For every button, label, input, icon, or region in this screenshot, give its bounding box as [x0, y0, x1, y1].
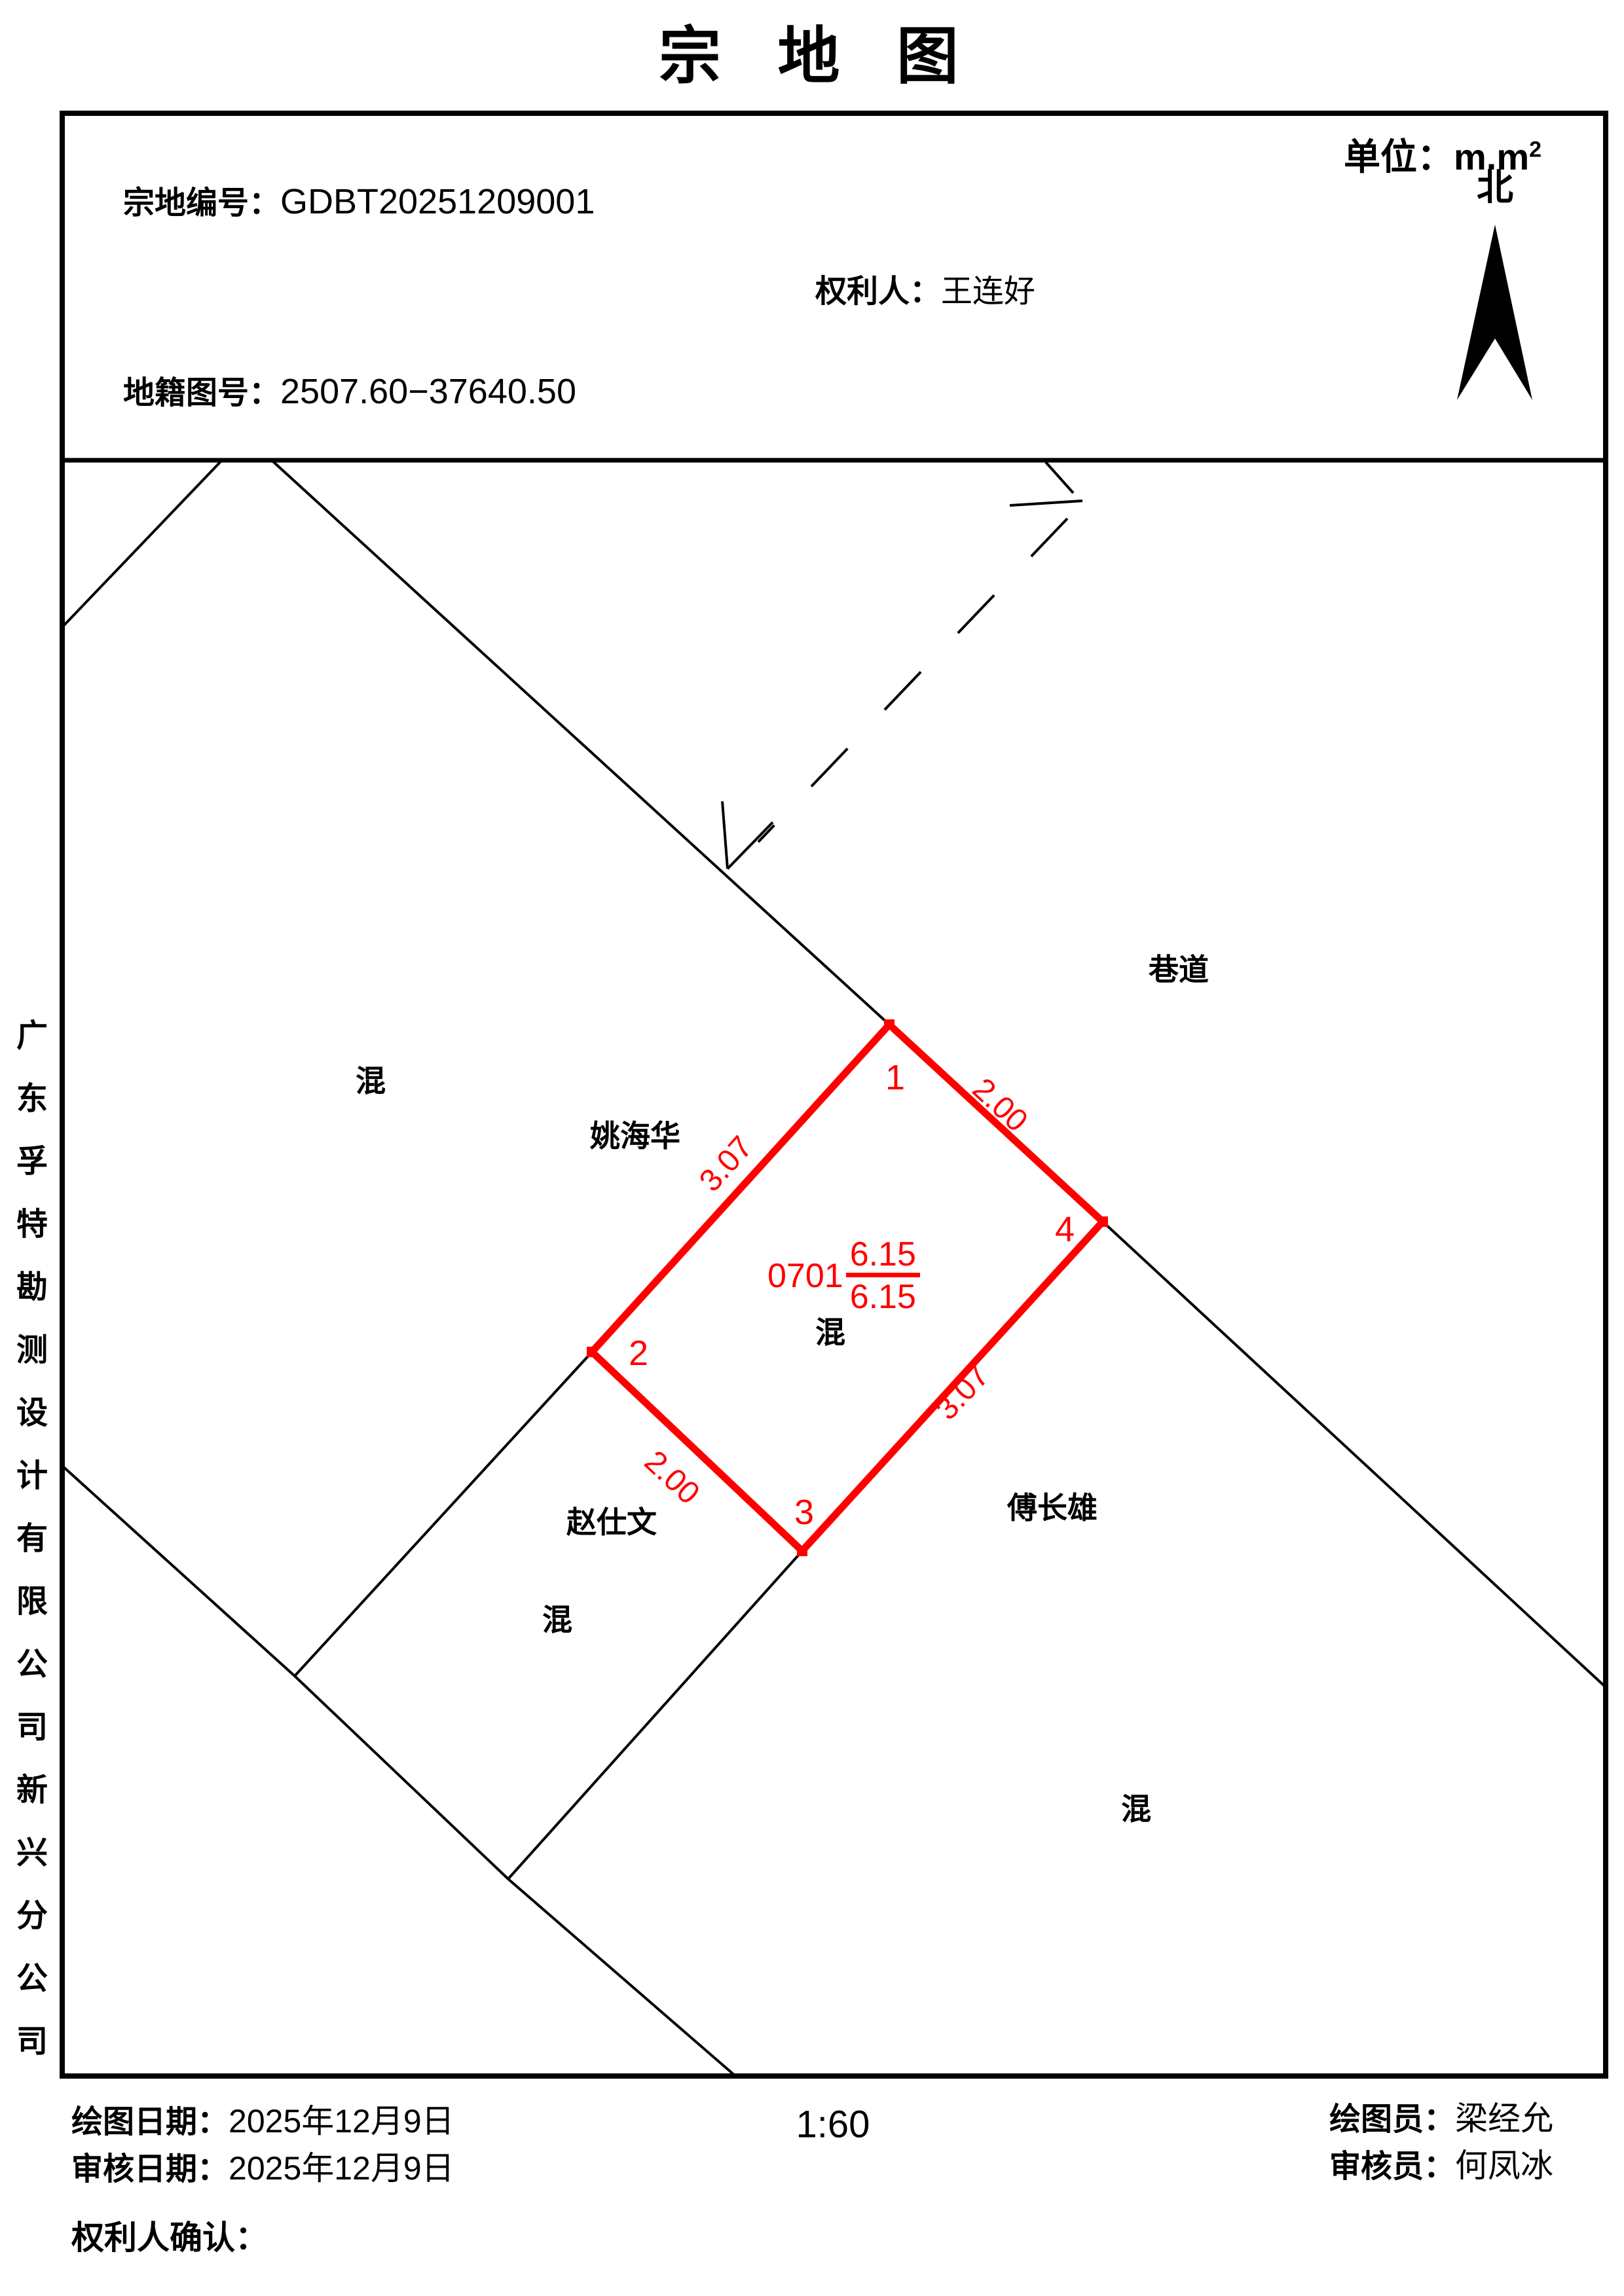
boundary-line-topleft-corner [62, 462, 221, 628]
map-scale: 1:60 [796, 2103, 870, 2147]
parcel-landuse-label: 混 [815, 1309, 845, 1352]
drafter-value: 梁经允 [1455, 2100, 1553, 2137]
boundary-line-to-vertex1 [273, 462, 889, 1025]
draw-date-label: 绘图日期： [71, 2105, 229, 2140]
parcel-area-fraction: 6.15 6.15 [846, 1237, 920, 1314]
vertex-marker-4 [1098, 1216, 1108, 1227]
reviewer-value: 何凤冰 [1455, 2147, 1553, 2184]
landuse-mix-label: 混 [1121, 1785, 1151, 1829]
owner-value: 王连好 [941, 274, 1035, 309]
owner-row: 权利人：王连好 [815, 265, 1035, 311]
drafter-row: 绘图员：梁经允 [1329, 2092, 1553, 2140]
north-label: 北 [1477, 158, 1513, 211]
neighbor-name: 赵仕文 [566, 1499, 657, 1542]
map-drawing-layer [0, 0, 1624, 2296]
neighbor-name: 姚海华 [590, 1112, 680, 1156]
leader-arrow-barb-left [722, 801, 728, 869]
dashed-leader-line [758, 519, 1067, 842]
vertex-number: 4 [1055, 1209, 1075, 1250]
vertex-marker-3 [797, 1546, 807, 1556]
drafter-label: 绘图员： [1329, 2102, 1455, 2137]
parcel-number-value: GDBT20251209001 [280, 182, 595, 221]
parcel-area-numerator: 6.15 [846, 1237, 920, 1277]
company-name-vertical: 广东孚特勘测设计有限公司新兴分公司 [5, 1019, 51, 2087]
vertex-number: 1 [885, 1057, 905, 1098]
parcel-code-area-block: 0701 6.15 6.15 [767, 1237, 920, 1314]
cadastral-parcel-map-page: 宗 地 图 单位：m.m2 宗地编号：GDBT20251209001 权利人：王… [0, 0, 1624, 2296]
page-title: 宗 地 图 [659, 7, 978, 96]
reviewer-row: 审核员：何凤冰 [1329, 2140, 1553, 2187]
sheet-number-value: 2507.60−37640.50 [280, 372, 576, 411]
vertex-marker-2 [587, 1347, 597, 1357]
sheet-number-row: 地籍图号：2507.60−37640.50 [123, 367, 576, 412]
north-arrow-icon [1457, 225, 1532, 400]
landuse-mix-label: 混 [542, 1596, 572, 1639]
review-date-label: 审核日期： [71, 2152, 229, 2187]
parcel-number-row: 宗地编号：GDBT20251209001 [123, 177, 595, 223]
leader-tick-segment [1010, 501, 1082, 505]
sheet-number-label: 地籍图号： [123, 376, 280, 410]
unit-superscript: 2 [1529, 137, 1541, 162]
vertex-number: 3 [794, 1492, 814, 1533]
review-date-row: 审核日期：2025年12月9日 [71, 2142, 454, 2189]
leader-start-segment [1046, 462, 1073, 493]
owner-confirm-label: 权利人确认： [71, 2212, 268, 2259]
reviewer-label: 审核员： [1329, 2149, 1455, 2184]
vertex-marker-1 [884, 1019, 895, 1030]
owner-label: 权利人： [815, 274, 941, 309]
draw-date-row: 绘图日期：2025年12月9日 [71, 2095, 454, 2142]
boundary-line-from-vertex4 [1103, 1222, 1606, 1687]
boundary-line-left-border [62, 1465, 295, 1676]
parcel-code: 0701 [767, 1256, 843, 1296]
parcel-number-label: 宗地编号： [123, 186, 280, 221]
vertex-number: 2 [629, 1333, 648, 1374]
leader-arrow-barb-right [728, 822, 773, 869]
boundary-line-to-bottom-border [508, 1879, 735, 2075]
review-date-value: 2025年12月9日 [229, 2150, 454, 2187]
parcel-area-denominator: 6.15 [846, 1277, 920, 1314]
road-label: 巷道 [1149, 946, 1209, 989]
boundary-line-junction1-junction2 [295, 1676, 508, 1879]
draw-date-value: 2025年12月9日 [229, 2103, 454, 2140]
landuse-mix-label: 混 [356, 1057, 386, 1101]
neighbor-name: 傅长雄 [1007, 1484, 1098, 1527]
